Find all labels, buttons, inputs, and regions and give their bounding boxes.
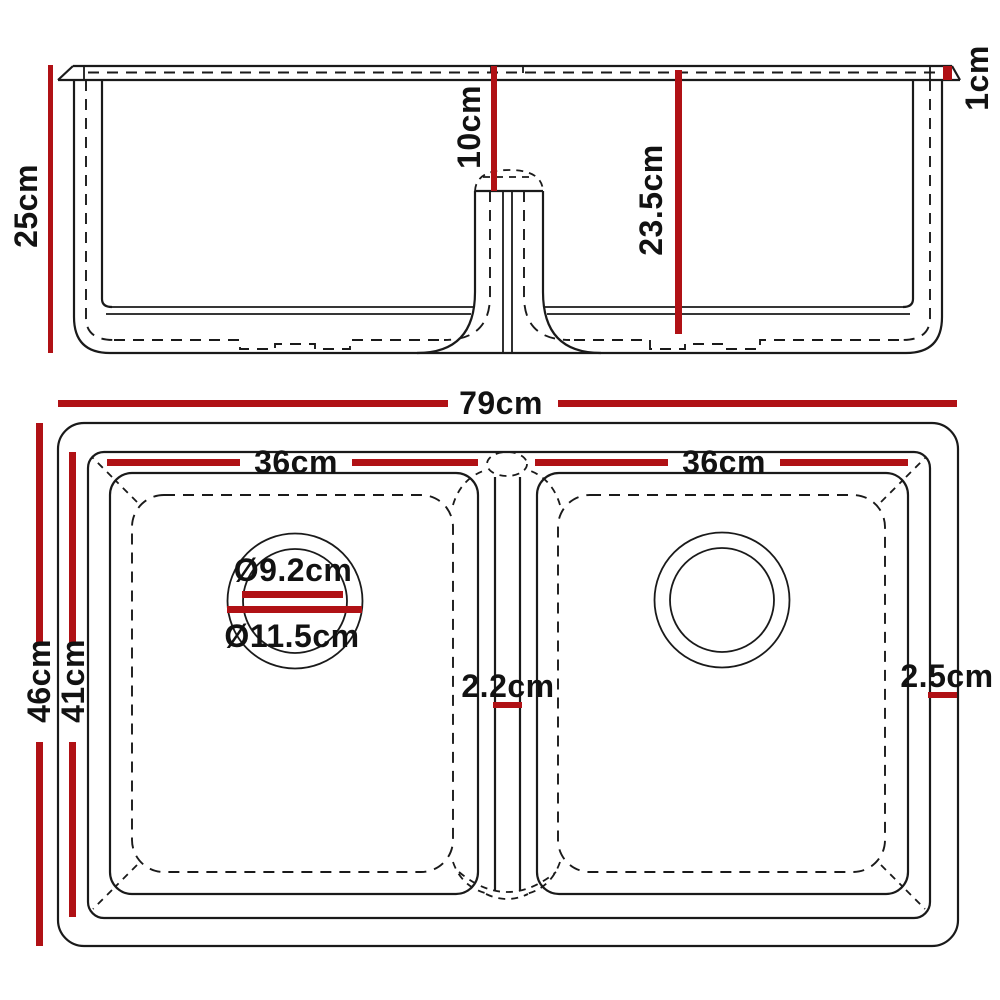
dim-label-36cm-left: 36cm: [254, 444, 338, 480]
dim-label-2-5cm: 2.5cm: [900, 658, 993, 694]
dim-label-25cm: 25cm: [8, 164, 44, 248]
dim-line-10cm: [491, 66, 497, 191]
front-view-rim: [58, 66, 960, 80]
dim-line-46cm-top: [36, 423, 43, 643]
technical-drawing-canvas: 25cm 10cm 23.5cm 1cm: [0, 0, 1000, 1000]
dim-line-25cm: [48, 65, 53, 353]
dim-line-79cm-left: [58, 400, 448, 407]
dim-line-drain-outer: [227, 606, 362, 613]
dim-line-41cm-top: [69, 452, 76, 643]
dim-label-41cm: 41cm: [55, 639, 91, 723]
front-view-divider: [417, 170, 601, 353]
dim-line-23-5cm: [675, 70, 682, 334]
dim-label-10cm: 10cm: [451, 85, 487, 169]
sink-dimension-drawing: 25cm 10cm 23.5cm 1cm: [0, 0, 1000, 1000]
front-view-body: [74, 80, 942, 353]
dim-label-79cm: 79cm: [459, 385, 543, 421]
dim-label-23-5cm: 23.5cm: [633, 144, 669, 256]
front-view: 25cm 10cm 23.5cm 1cm: [8, 45, 995, 353]
faucet-hole: [487, 452, 527, 476]
dim-label-drain-inner: Ø9.2cm: [234, 552, 353, 588]
dim-line-41cm-bottom: [69, 742, 76, 917]
dim-line-36cm-right-a: [535, 459, 668, 466]
right-drain: [655, 533, 790, 668]
dim-line-36cm-left-b: [352, 459, 478, 466]
dim-line-36cm-left-a: [107, 459, 240, 466]
dim-line-79cm-right: [558, 400, 957, 407]
top-view: 79cm 36cm 36cm 46cm 41cm Ø9.2cm Ø11.5cm …: [21, 385, 994, 946]
dim-mark-1cm: [943, 66, 952, 80]
dim-label-1cm: 1cm: [959, 45, 995, 111]
dim-label-2-2cm: 2.2cm: [461, 668, 554, 704]
dim-line-drain-inner: [242, 591, 343, 598]
dim-line-46cm-bottom: [36, 742, 43, 946]
dim-line-36cm-right-b: [780, 459, 908, 466]
dim-label-36cm-right: 36cm: [682, 444, 766, 480]
dim-label-drain-outer: Ø11.5cm: [224, 618, 359, 654]
dim-label-46cm: 46cm: [21, 639, 57, 723]
